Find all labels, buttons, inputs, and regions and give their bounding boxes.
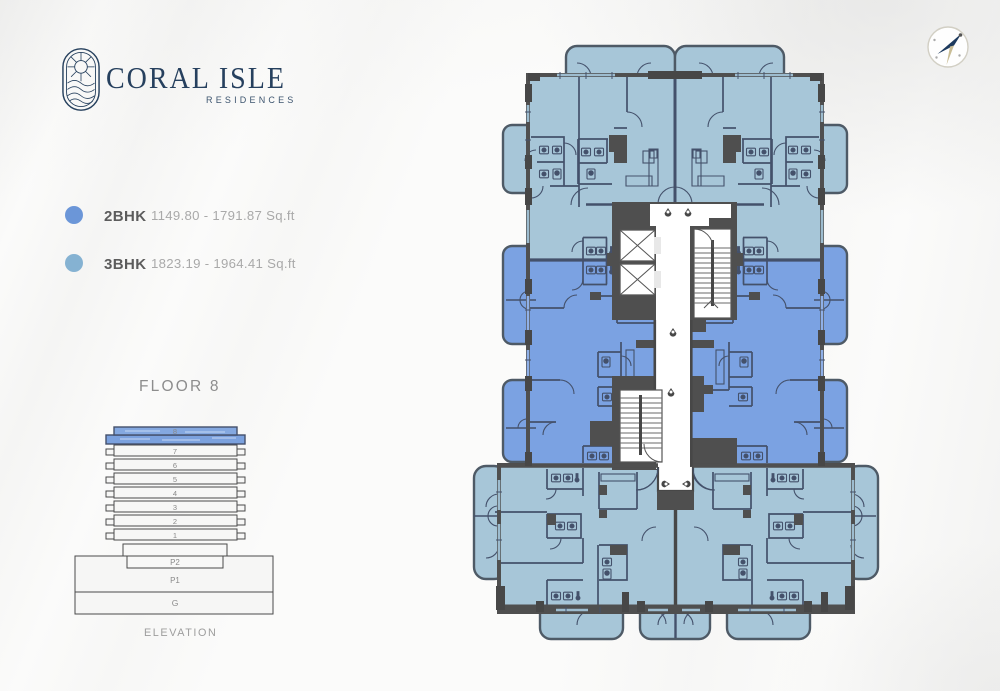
svg-text:3: 3 — [173, 503, 177, 512]
svg-text:8: 8 — [173, 427, 177, 436]
svg-text:1: 1 — [173, 531, 177, 540]
svg-text:G: G — [172, 598, 179, 608]
svg-text:4: 4 — [173, 489, 177, 498]
svg-text:6: 6 — [173, 461, 177, 470]
svg-text:7: 7 — [173, 447, 177, 456]
svg-text:P2: P2 — [170, 558, 180, 567]
svg-text:2: 2 — [173, 517, 177, 526]
svg-text:P1: P1 — [170, 576, 180, 585]
svg-text:5: 5 — [173, 475, 177, 484]
